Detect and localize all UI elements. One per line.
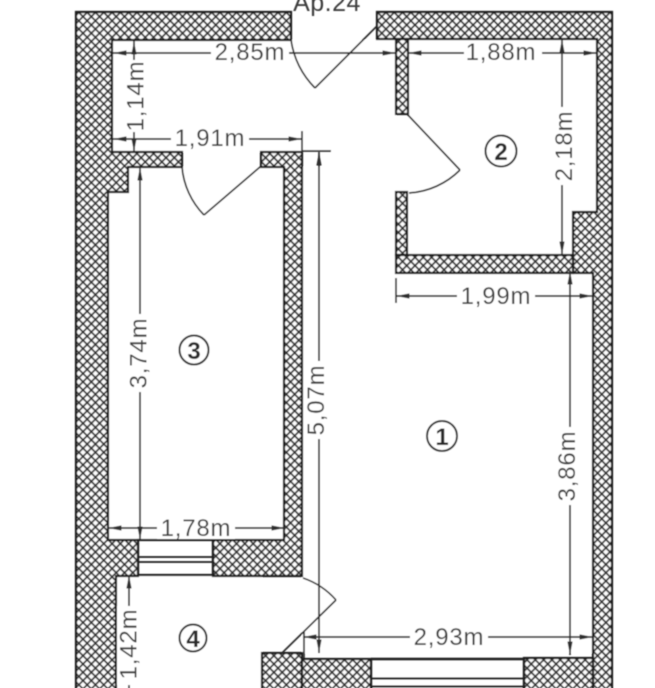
svg-text:1,14m: 1,14m	[123, 61, 150, 132]
svg-text:5,07m: 5,07m	[303, 365, 330, 436]
svg-text:Ap.24: Ap.24	[293, 0, 361, 17]
svg-text:1,99m: 1,99m	[461, 283, 532, 310]
svg-text:1,91m: 1,91m	[175, 125, 246, 152]
svg-text:1: 1	[435, 424, 448, 451]
svg-text:3,86m: 3,86m	[554, 431, 581, 502]
svg-text:1,78m: 1,78m	[161, 515, 232, 542]
svg-text:4: 4	[186, 626, 200, 653]
svg-text:2: 2	[494, 139, 507, 166]
svg-text:2,18m: 2,18m	[551, 111, 578, 182]
svg-text:1,88m: 1,88m	[466, 39, 537, 66]
svg-text:2,93m: 2,93m	[414, 624, 485, 651]
svg-text:3: 3	[187, 338, 200, 365]
svg-text:3,74m: 3,74m	[126, 318, 153, 389]
svg-text:1,42m: 1,42m	[116, 609, 143, 680]
svg-text:2,85m: 2,85m	[215, 39, 286, 66]
